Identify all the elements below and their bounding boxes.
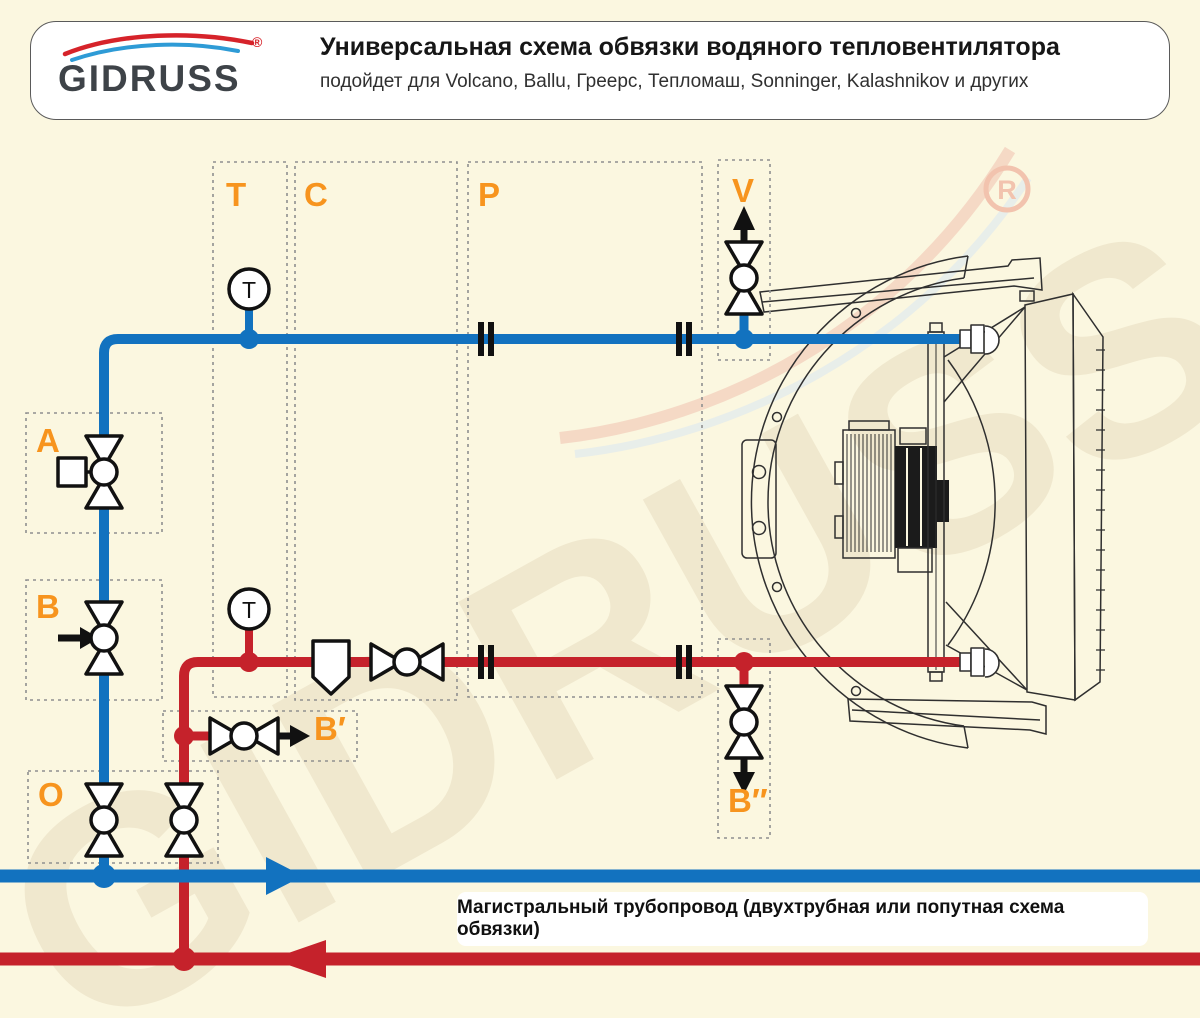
junction-dot <box>172 947 196 971</box>
piping-diagram: GIDRUSS R <box>0 0 1200 1018</box>
valve-b-balancing <box>58 602 122 674</box>
union-icon <box>676 322 682 356</box>
schematic-page: GIDRUSS R <box>0 0 1200 1018</box>
junction-dot <box>239 652 259 672</box>
logo-text: GIDRUSS <box>58 58 241 100</box>
junction-dot <box>239 329 259 349</box>
valve-o-return <box>166 784 202 856</box>
heat-exchanger-stub <box>930 672 942 681</box>
main-pipeline-note-text: Магистральный трубопровод (двухтрубная и… <box>457 897 1148 941</box>
zone-label-b-prime: B′ <box>314 712 346 745</box>
zone-label-v: V <box>732 174 754 207</box>
union-icon <box>478 322 484 356</box>
union-icon <box>488 645 494 679</box>
bottom-console-arm <box>848 699 1046 734</box>
junction-dot <box>734 329 754 349</box>
watermark-registered-letter: R <box>997 175 1017 205</box>
return-thermometer-letter: T <box>237 597 261 624</box>
zone-label-b-double-prime: B″ <box>728 784 768 817</box>
zone-label-c: C <box>304 178 328 211</box>
heater-return-fitting <box>960 648 999 677</box>
zone-label-p: P <box>478 178 500 211</box>
motor-dark-body <box>895 446 937 548</box>
up-arrow-icon <box>733 206 755 230</box>
page-title: Универсальная схема обвязки водяного теп… <box>320 33 1060 62</box>
main-pipeline-note: Магистральный трубопровод (двухтрубная и… <box>457 892 1148 946</box>
zone-label-a: A <box>36 424 60 457</box>
bolt-hole-icon <box>852 687 861 696</box>
control-valve <box>371 644 443 680</box>
actuator-icon <box>58 458 86 486</box>
union-icon <box>478 645 484 679</box>
air-vent-valve <box>726 206 762 314</box>
zone-label-t: T <box>226 178 246 211</box>
junction-dot <box>734 652 754 672</box>
bottom-console-arm-line <box>852 710 1040 720</box>
union-icon <box>676 645 682 679</box>
zone-label-o: O <box>38 778 64 811</box>
supply-thermometer-letter: T <box>237 277 261 304</box>
logo-registered-mark: ® <box>252 34 262 50</box>
union-icon <box>686 645 692 679</box>
valve-o-supply <box>86 784 122 856</box>
zone-label-b: B <box>36 590 60 623</box>
union-icon <box>686 322 692 356</box>
valve-a-motorized <box>58 436 122 508</box>
junction-dot <box>92 864 116 888</box>
junction-dot <box>174 726 194 746</box>
motor-hub <box>937 480 949 522</box>
union-icon <box>488 322 494 356</box>
page-subtitle: подойдет для Volcano, Ballu, Греерс, Теп… <box>320 71 1028 93</box>
